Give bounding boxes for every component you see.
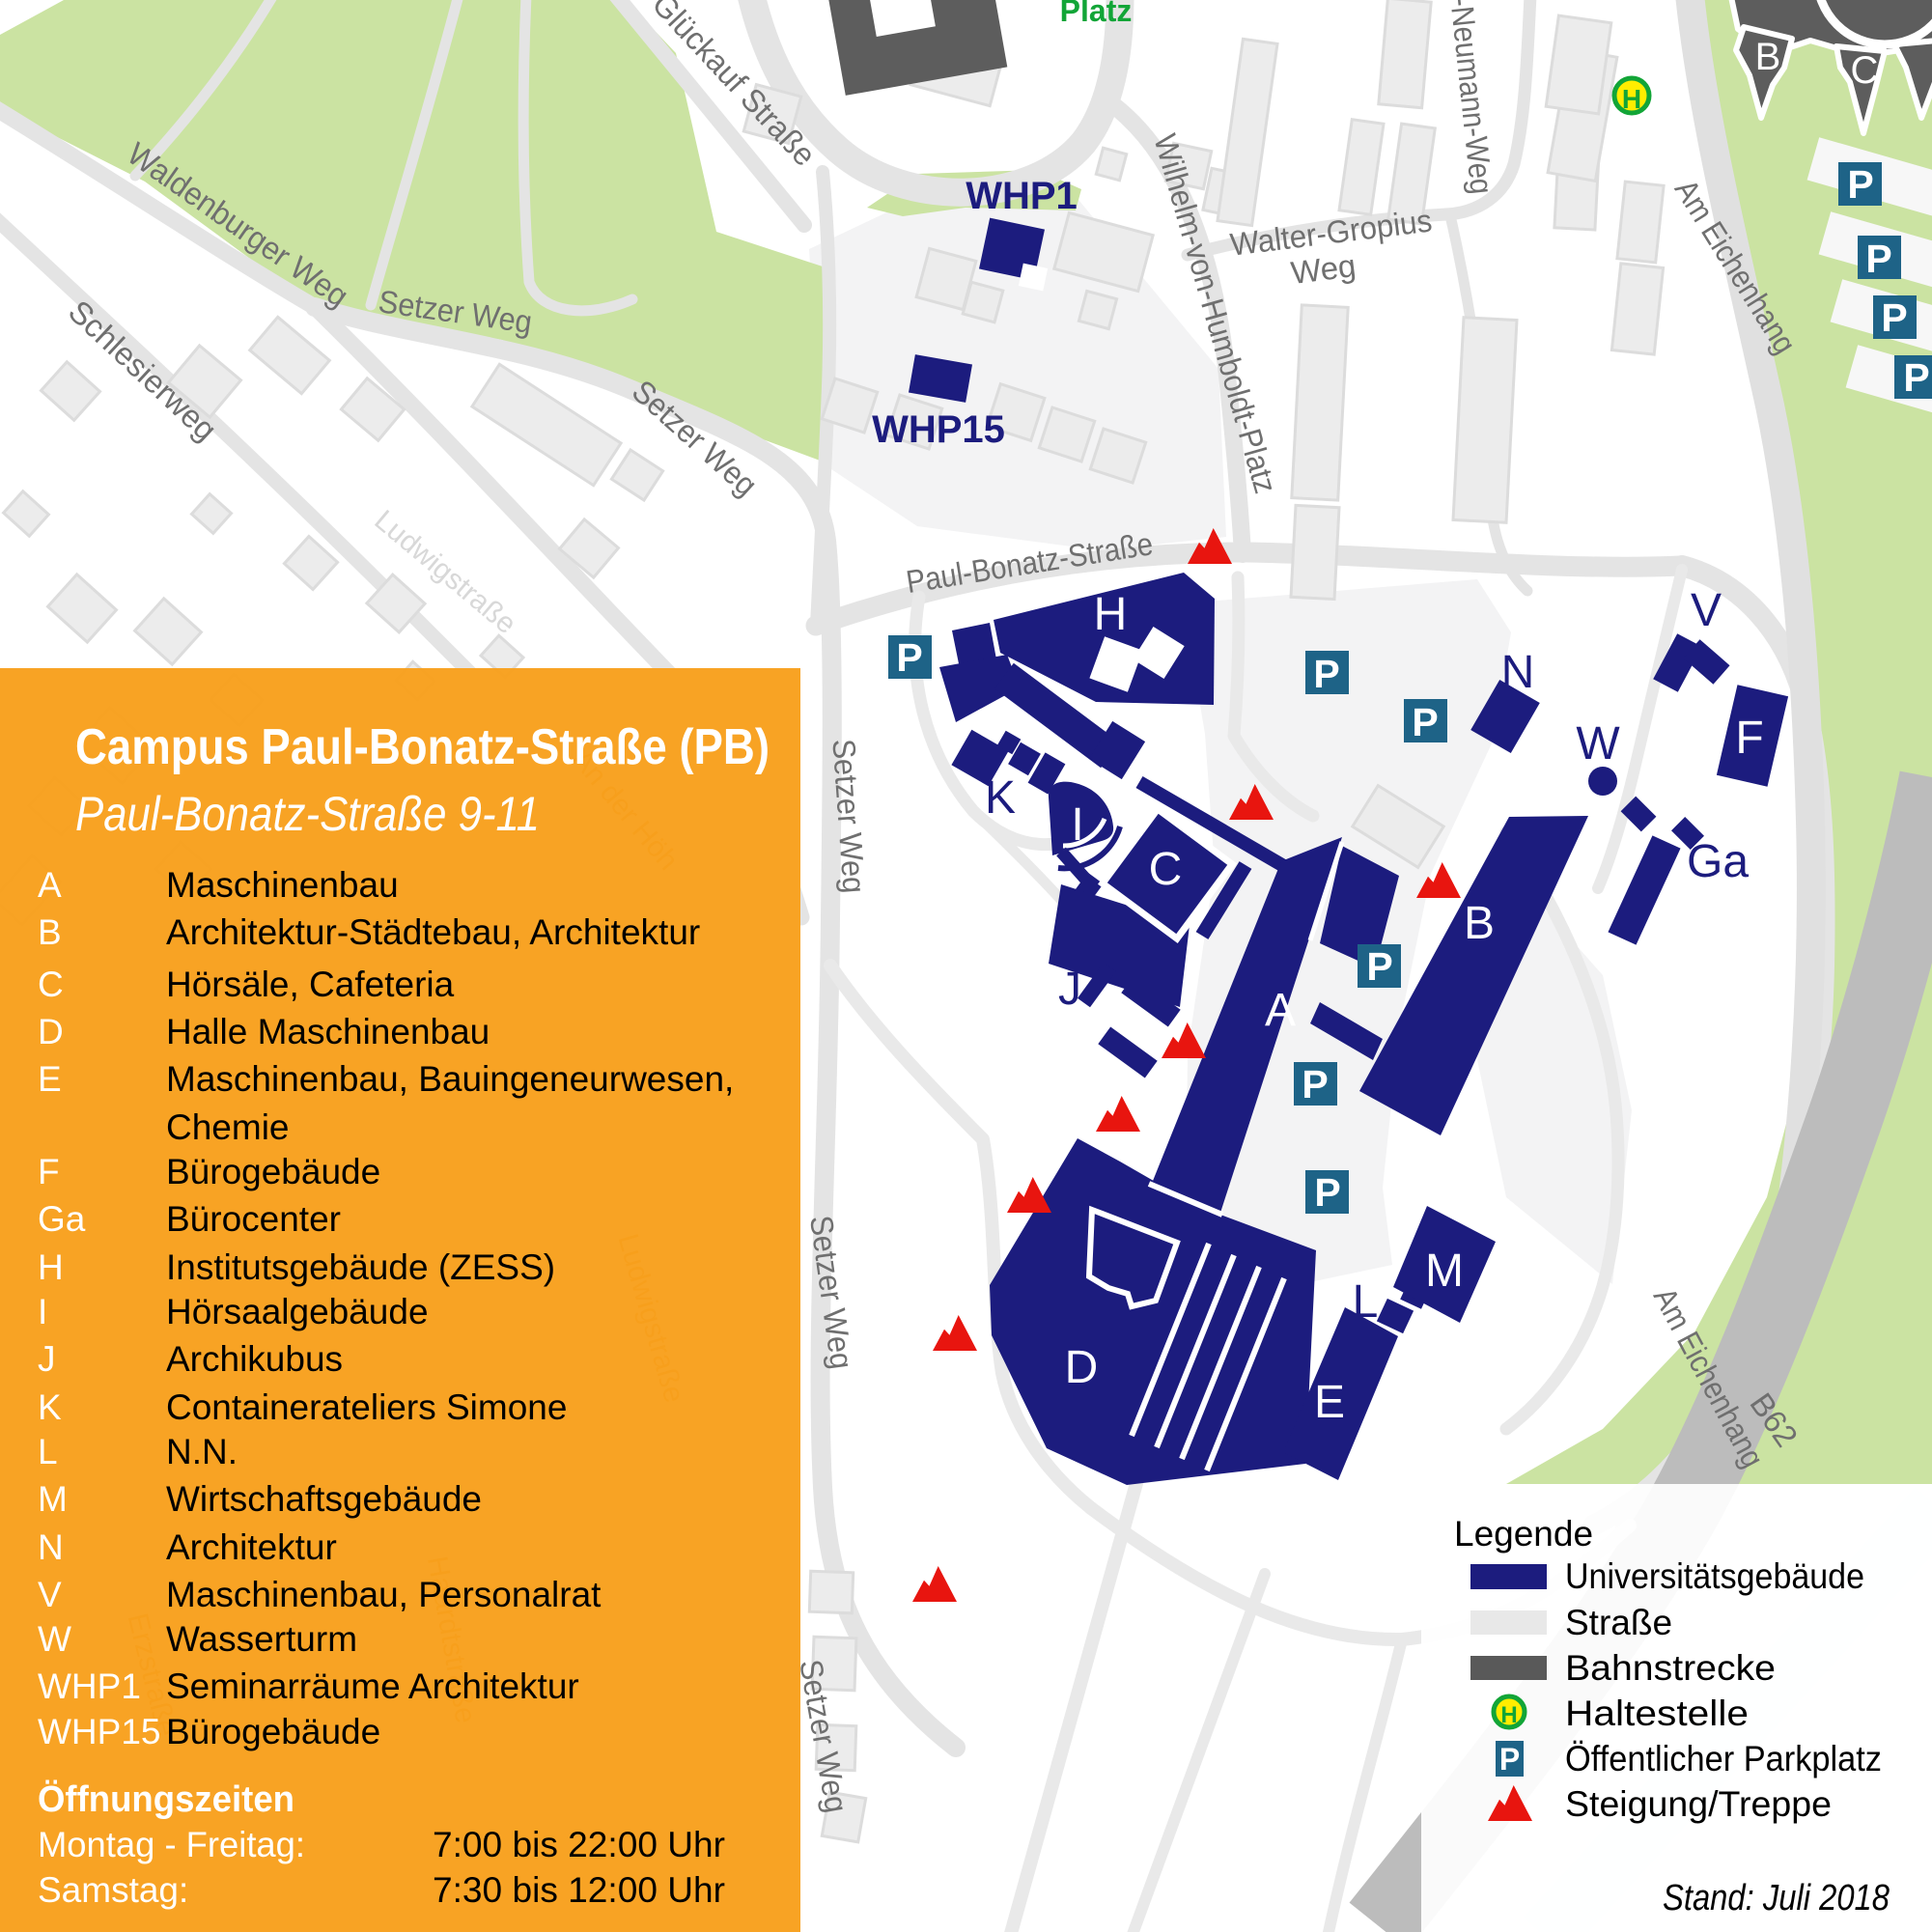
svg-text:Straße: Straße [1565,1603,1672,1642]
svg-text:Öffnungszeiten: Öffnungszeiten [38,1778,294,1820]
svg-text:Montag - Freitag:: Montag - Freitag: [38,1825,305,1864]
svg-text:7:00 bis 22:00 Uhr: 7:00 bis 22:00 Uhr [433,1825,725,1864]
svg-text:P: P [1865,237,1891,281]
svg-text:C: C [38,965,64,1004]
svg-text:Samstag:: Samstag: [38,1870,188,1910]
svg-text:B: B [1464,898,1495,949]
svg-text:Hörsäle, Cafeteria: Hörsäle, Cafeteria [166,965,455,1004]
svg-text:Ga: Ga [38,1199,86,1239]
svg-text:WHP15: WHP15 [872,408,1005,451]
svg-text:Archikubus: Archikubus [166,1339,343,1379]
svg-text:P: P [1903,355,1929,400]
svg-text:Universitätsgebäude: Universitätsgebäude [1565,1556,1864,1596]
svg-text:L: L [38,1432,58,1471]
svg-text:Architektur: Architektur [166,1527,337,1567]
svg-text:N: N [38,1527,64,1567]
svg-text:WHP1: WHP1 [966,175,1078,217]
svg-text:Chemie: Chemie [166,1107,290,1147]
svg-text:Halle Maschinenbau: Halle Maschinenbau [166,1012,490,1051]
svg-text:Ga: Ga [1687,836,1749,887]
svg-text:A: A [1265,985,1296,1036]
svg-text:P: P [896,635,922,680]
svg-text:Maschinenbau: Maschinenbau [166,865,399,905]
svg-text:D: D [1065,1342,1099,1393]
svg-text:J: J [38,1339,56,1379]
svg-text:B: B [1755,36,1781,78]
svg-text:7:30 bis 12:00 Uhr: 7:30 bis 12:00 Uhr [433,1870,725,1910]
svg-text:N: N [1501,647,1535,698]
svg-text:C: C [1851,49,1879,92]
svg-text:Paul-Bonatz-Straße 9-11: Paul-Bonatz-Straße 9-11 [75,787,540,841]
svg-text:Öffentlicher Parkplatz: Öffentlicher Parkplatz [1565,1739,1882,1778]
svg-text:P: P [1847,162,1873,207]
svg-text:WHP1: WHP1 [38,1666,141,1706]
svg-text:I: I [1071,799,1083,851]
svg-text:H: H [1500,1702,1517,1728]
svg-text:F: F [38,1152,60,1191]
svg-text:Institutsgebäude (ZESS): Institutsgebäude (ZESS) [166,1247,555,1287]
svg-text:H: H [1094,589,1128,640]
svg-text:Wasserturm: Wasserturm [166,1619,357,1659]
svg-text:H: H [1622,84,1641,114]
svg-text:Maschinenbau, Bauingeneurwesen: Maschinenbau, Bauingeneurwesen, [166,1059,734,1099]
svg-text:D: D [38,1012,64,1051]
svg-text:P: P [1366,944,1392,989]
svg-text:P: P [1499,1742,1520,1777]
svg-text:Bürogebäude: Bürogebäude [166,1152,380,1191]
svg-text:F: F [1735,713,1763,764]
svg-text:K: K [38,1387,62,1427]
svg-text:Steigung/Treppe: Steigung/Treppe [1565,1784,1832,1824]
svg-text:Bürocenter: Bürocenter [166,1199,341,1239]
svg-text:Haltestelle: Haltestelle [1565,1694,1749,1733]
svg-text:Architektur-Städtebau, Archite: Architektur-Städtebau, Architektur [166,912,700,952]
svg-text:M: M [38,1479,68,1519]
svg-text:A: A [38,865,62,905]
svg-text:Legende: Legende [1454,1514,1593,1554]
svg-text:Hörsaalgebäude: Hörsaalgebäude [166,1292,429,1331]
svg-text:M: M [1425,1246,1464,1297]
svg-text:L: L [1353,1276,1379,1328]
svg-text:Campus Paul-Bonatz-Straße (PB: Campus Paul-Bonatz-Straße (PB) [75,719,770,775]
svg-text:Bahnstrecke: Bahnstrecke [1565,1648,1776,1688]
svg-text:Containerateliers Simone: Containerateliers Simone [166,1387,567,1427]
svg-text:Wirtschaftsgebäude: Wirtschaftsgebäude [166,1479,482,1519]
svg-text:W: W [1576,718,1620,770]
svg-text:P: P [1881,295,1907,340]
svg-text:B: B [38,912,62,952]
svg-text:P: P [1313,652,1339,696]
svg-text:N.N.: N.N. [166,1432,238,1471]
svg-text:WHP15: WHP15 [38,1712,160,1751]
svg-text:E: E [1314,1377,1345,1428]
svg-text:P: P [1302,1062,1328,1106]
svg-text:Maschinenbau, Personalrat: Maschinenbau, Personalrat [166,1575,602,1614]
svg-text:I: I [38,1292,47,1331]
svg-text:Platz: Platz [1060,0,1133,28]
svg-text:Seminarräume Architektur: Seminarräume Architektur [166,1666,579,1706]
svg-text:V: V [1691,585,1722,636]
svg-text:J: J [1058,964,1081,1015]
svg-text:K: K [985,772,1016,824]
svg-text:Stand: Juli 2018: Stand: Juli 2018 [1663,1878,1890,1918]
svg-text:W: W [38,1619,71,1659]
svg-text:H: H [38,1247,64,1287]
svg-text:P: P [1314,1170,1340,1215]
svg-text:P: P [1412,700,1438,744]
svg-text:C: C [1149,844,1183,895]
svg-text:V: V [38,1575,62,1614]
svg-text:E: E [38,1059,62,1099]
svg-text:Bürogebäude: Bürogebäude [166,1712,380,1751]
